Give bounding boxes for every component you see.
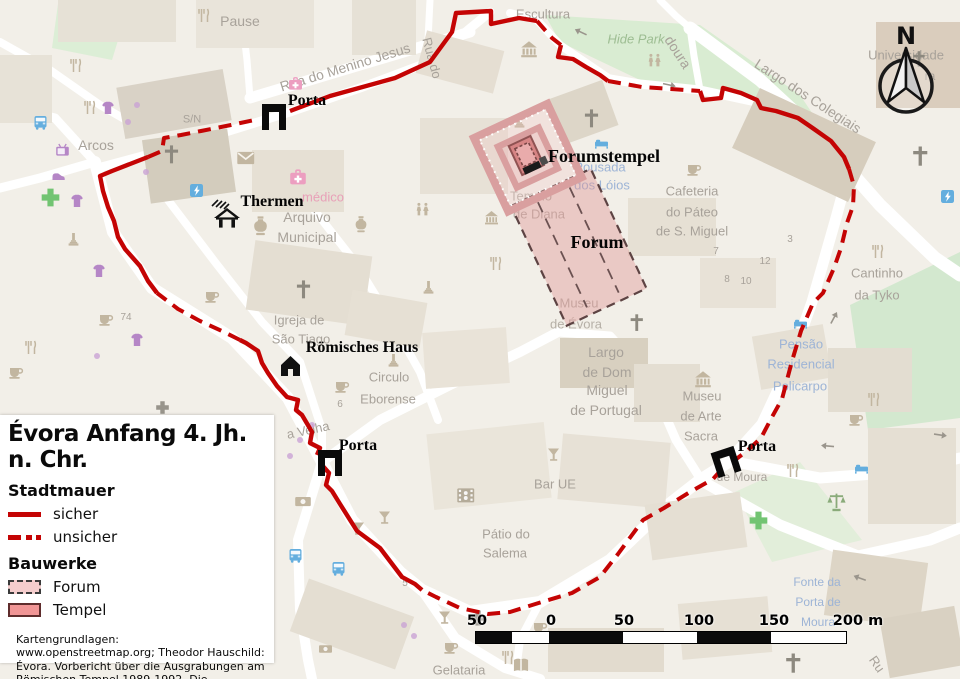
attribution-line: Évora. Vorbericht über die Ausgrabungen … — [16, 660, 266, 673]
legend-item-sicher: sicher — [8, 505, 266, 523]
legend-item-unsicher: unsicher — [8, 528, 266, 546]
legend-item-tempel: Tempel — [8, 601, 266, 619]
scale-bar — [475, 631, 847, 644]
legend-panel: Évora Anfang 4. Jh. n. Chr. Stadtmauer s… — [0, 415, 274, 663]
legend-section-bauwerke: Bauwerke — [8, 554, 266, 573]
legend-label-forum: Forum — [53, 578, 101, 596]
scale-label: 50 — [467, 613, 487, 629]
tempel-swatch-icon — [8, 603, 41, 617]
attribution-line: Kartengrundlagen: — [16, 633, 266, 646]
forum-swatch-icon — [8, 580, 41, 594]
site-label: Porta — [339, 438, 377, 454]
site-label: Porta — [288, 93, 326, 109]
scale-label: 200 m — [833, 613, 883, 629]
compass-north-label: N — [896, 22, 916, 50]
legend-label-sicher: sicher — [53, 505, 98, 523]
scale-bar-segment — [476, 632, 512, 643]
site-label: Forum — [571, 233, 624, 251]
legend-label-unsicher: unsicher — [53, 528, 117, 546]
scale-bar-segment — [512, 632, 549, 643]
attribution-line: www.openstreetmap.org; Theodor Hauschild… — [16, 646, 266, 659]
attribution-line: Römischen Tempel 1989-1992. Die Konstruk… — [16, 673, 266, 679]
compass-rose: N — [862, 14, 950, 124]
site-label: Porta — [738, 439, 776, 455]
scale-bar-segment — [549, 632, 623, 643]
legend-label-tempel: Tempel — [53, 601, 106, 619]
map-attribution: Kartengrundlagen: www.openstreetmap.org;… — [16, 633, 266, 679]
evora-roman-map: PauseRua do Menino JesusRua dodouraEscul… — [0, 0, 960, 679]
scale-bar-segment — [771, 632, 846, 643]
scale-label: 0 — [546, 613, 556, 629]
site-label: Römisches Haus — [306, 340, 418, 356]
scale-label: 150 — [759, 613, 789, 629]
scale-bar-segment — [697, 632, 771, 643]
map-title: Évora Anfang 4. Jh. n. Chr. — [8, 421, 266, 473]
legend-item-forum: Forum — [8, 578, 266, 596]
wall-certain-swatch-icon — [8, 512, 41, 517]
scale-label: 100 — [684, 613, 714, 629]
legend-section-stadtmauer: Stadtmauer — [8, 481, 266, 500]
site-label: Forumstempel — [548, 147, 660, 165]
scale-bar-segment — [623, 632, 697, 643]
wall-uncertain-swatch-icon — [8, 535, 41, 540]
site-label: Thermen — [240, 194, 303, 210]
scale-label: 50 — [614, 613, 634, 629]
